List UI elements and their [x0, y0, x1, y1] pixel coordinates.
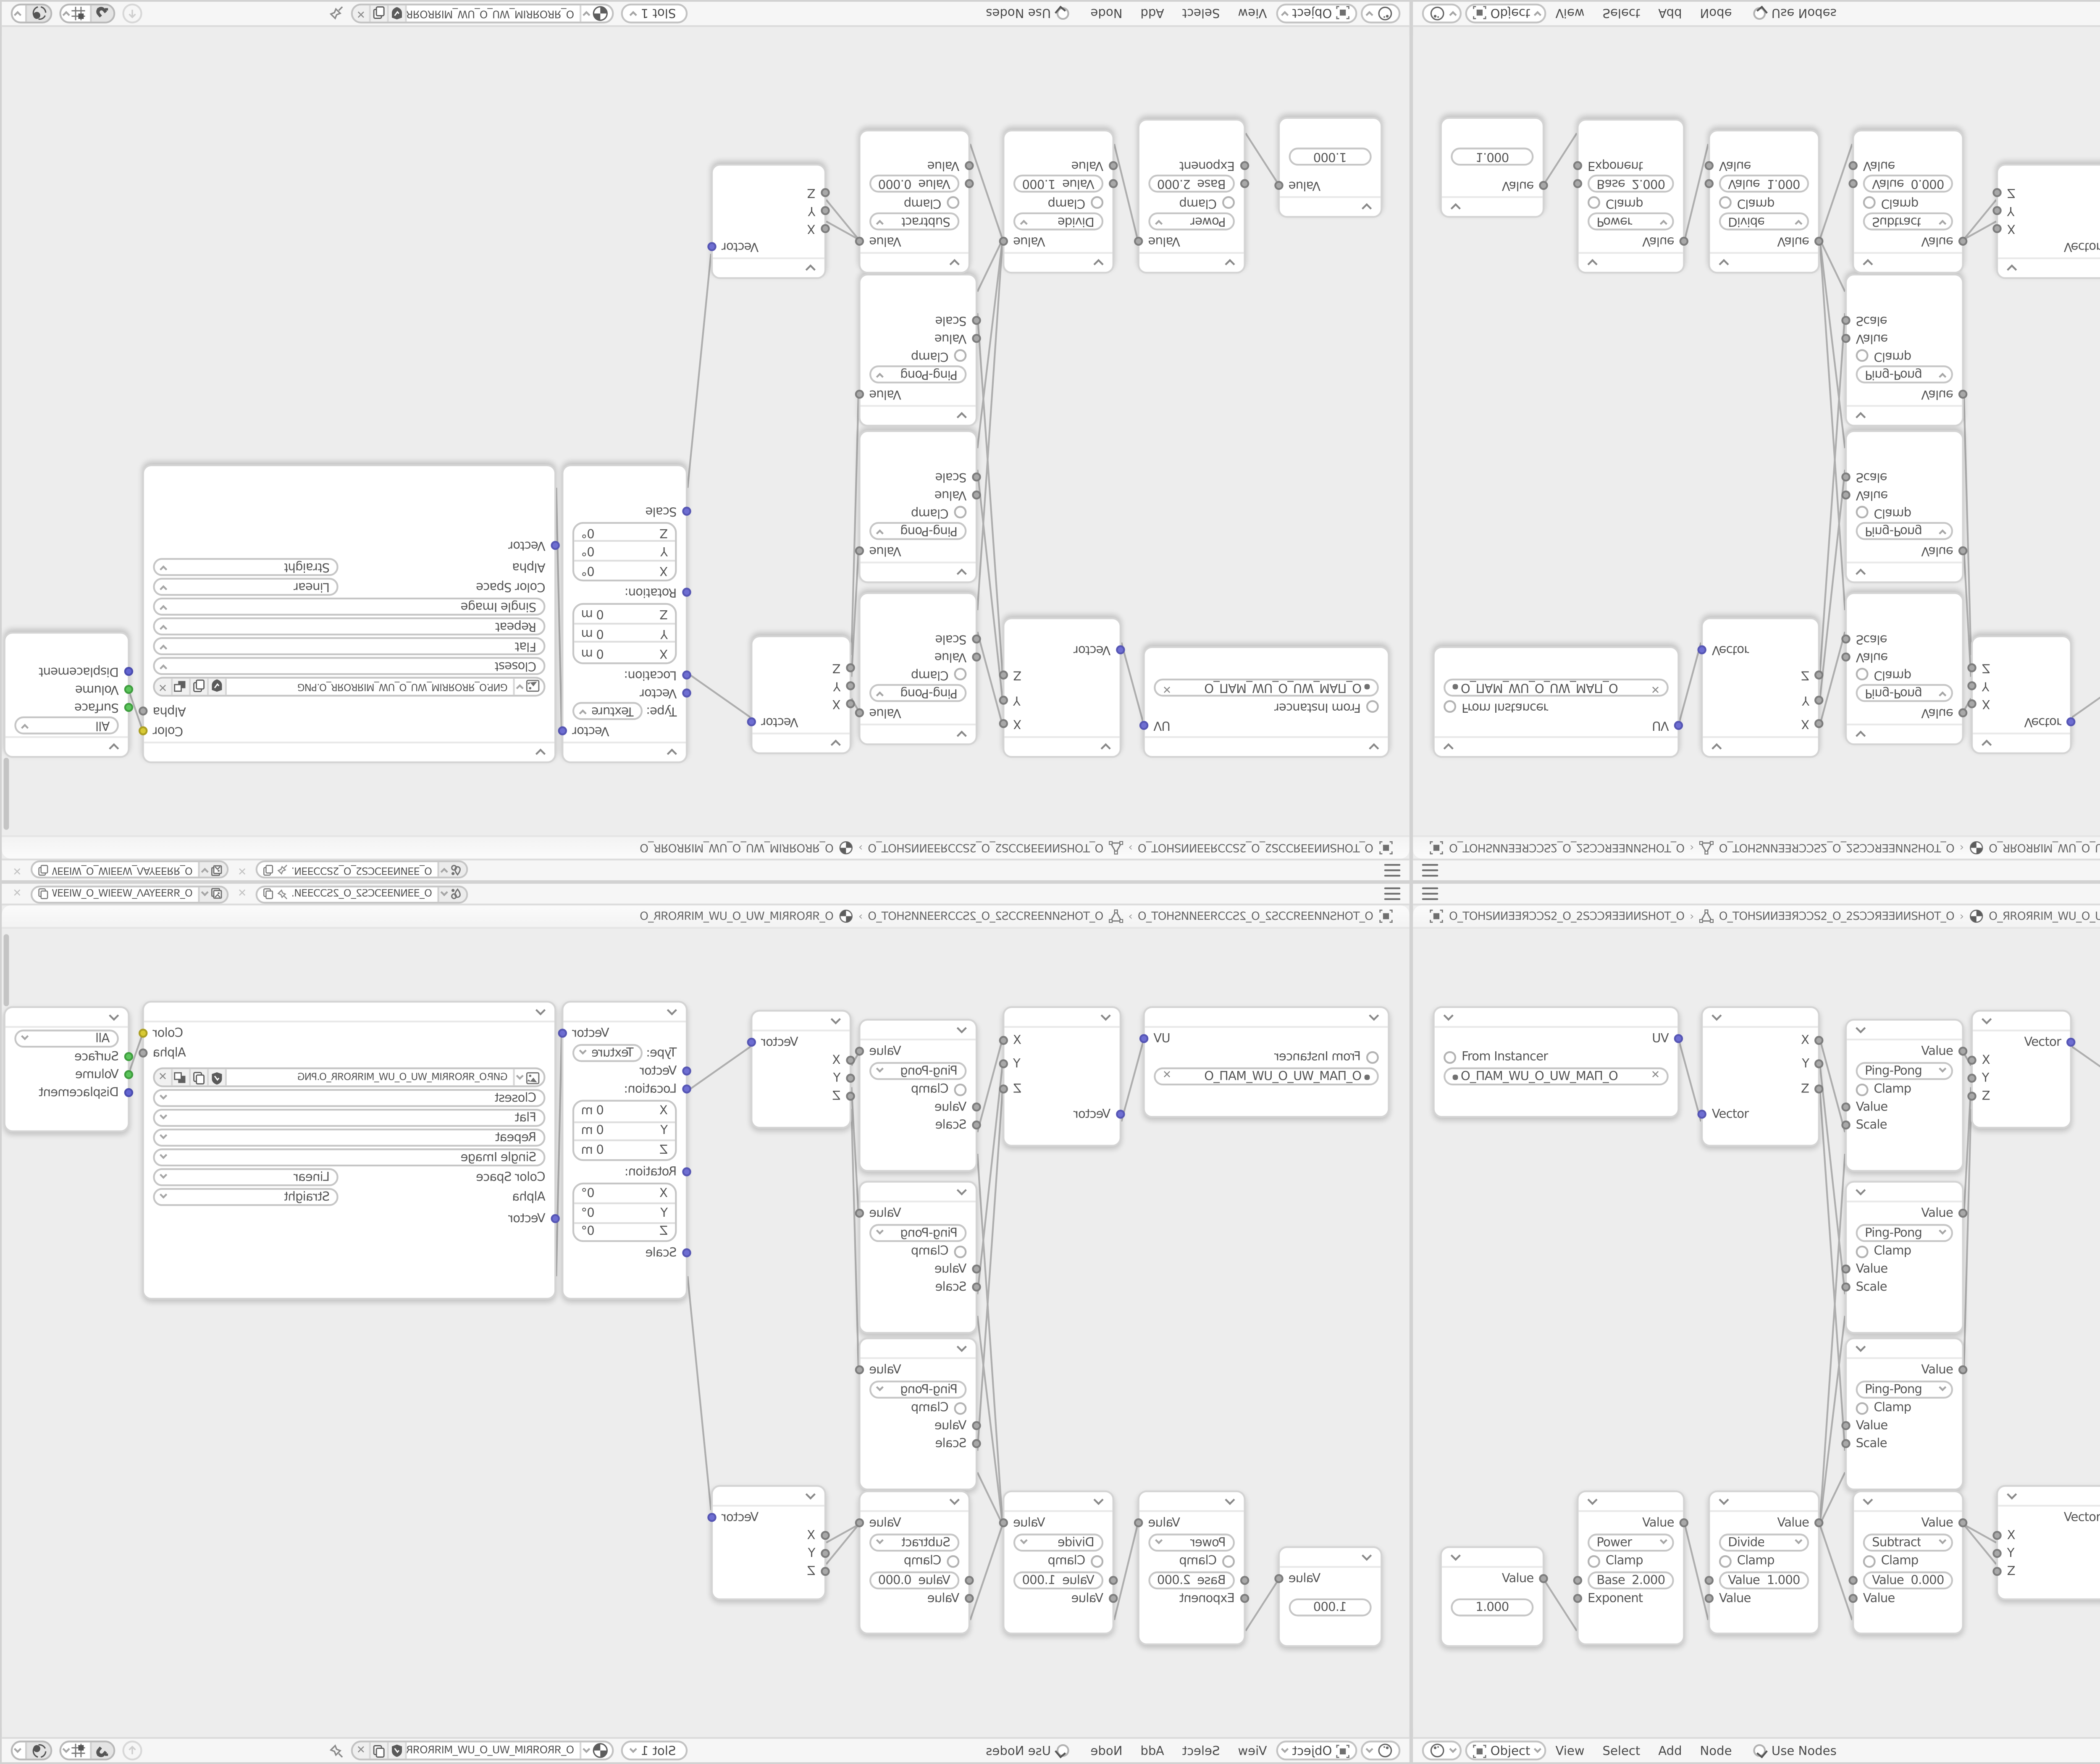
- editor-type-button[interactable]: [1422, 1740, 1462, 1760]
- projection-dropdown[interactable]: Flat: [153, 1108, 545, 1126]
- socket-value2-in[interactable]: [1848, 1594, 1857, 1603]
- copy-material-button[interactable]: [371, 5, 389, 22]
- base-field[interactable]: Base2.000: [1148, 176, 1235, 194]
- node-collapse-chevron[interactable]: [1847, 1339, 1962, 1359]
- unlink-x-icon[interactable]: ✕: [236, 864, 249, 877]
- projection-dropdown[interactable]: Flat: [153, 638, 545, 656]
- node-collapse-chevron[interactable]: [861, 405, 976, 425]
- socket-vector-in[interactable]: [1697, 1110, 1706, 1118]
- socket-value-out[interactable]: [855, 391, 864, 399]
- socket-y-in[interactable]: [1992, 1549, 2001, 1558]
- socket-value-in[interactable]: [1841, 1421, 1850, 1430]
- socket-y-in[interactable]: [821, 1549, 829, 1558]
- math-operation-dropdown[interactable]: Power: [1148, 1533, 1235, 1551]
- x-icon[interactable]: ✕: [1651, 1070, 1660, 1081]
- node-image-texture[interactable]: Color Alpha GИP.O_ЯROЯRIM_WU_O_UW_MIЯROЯ…: [142, 465, 556, 763]
- clamp-checkbox[interactable]: [954, 507, 966, 519]
- menu-view[interactable]: View: [1238, 1743, 1267, 1758]
- viewlayer-selector[interactable]: O_ЯЯƎƎYAΛ_WƎƎIW_O_WIƎƎW_ΛAYƎƎЯЯ_O: [31, 885, 228, 903]
- alpha-dropdown[interactable]: Straight: [153, 1187, 339, 1205]
- breadcrumb-object[interactable]: O_TOHSИИƎƎЯƆƆS2_O_2SƆƆЯƎƎИИSHOT_O: [1138, 842, 1373, 854]
- socket-value-in[interactable]: [972, 1265, 981, 1273]
- socket-y-in[interactable]: [1967, 1074, 1976, 1082]
- node-uv-map[interactable]: UV From Instancer O_ПAM_WU_O_UW_MAП_O✕: [1143, 646, 1389, 758]
- socket-scale-in[interactable]: [1841, 1439, 1850, 1448]
- socket-z-in[interactable]: [1967, 663, 1976, 672]
- node-collapse-chevron[interactable]: [1998, 1487, 2100, 1507]
- from-instancer-checkbox[interactable]: [1444, 1050, 1456, 1063]
- socket-scale-in[interactable]: [1841, 316, 1850, 325]
- node-collapse-chevron[interactable]: [5, 736, 128, 756]
- node-math-ping-pong[interactable]: Value Ping-Pong Clamp Value Scale: [858, 1337, 977, 1490]
- clamp-checkbox[interactable]: [1588, 1554, 1600, 1567]
- socket-vector-in[interactable]: [1116, 645, 1125, 654]
- clamp-checkbox[interactable]: [1863, 1554, 1876, 1567]
- socket-exponent-in[interactable]: [1240, 1594, 1249, 1603]
- mode-dropdown[interactable]: Object: [1465, 4, 1546, 24]
- socket-vector-in[interactable]: [1697, 645, 1706, 654]
- socket-x-out[interactable]: [1814, 1035, 1823, 1044]
- math-operation-dropdown[interactable]: Ping-Pong: [869, 1061, 966, 1079]
- socket-vector-out[interactable]: [747, 1037, 756, 1046]
- socket-z-in[interactable]: [1992, 1567, 2001, 1576]
- menu-hamburger-icon[interactable]: [1384, 887, 1401, 900]
- x-icon[interactable]: ✕: [1163, 1070, 1172, 1081]
- socket-alpha-out[interactable]: [139, 1047, 147, 1056]
- clamp-checkbox[interactable]: [1588, 197, 1600, 210]
- socket-value-out[interactable]: [1134, 238, 1143, 247]
- use-nodes-checkbox[interactable]: [1056, 7, 1069, 20]
- uv-map-dropdown[interactable]: O_ПAM_WU_O_UW_MAП_O✕: [1444, 1066, 1669, 1084]
- socket-vector-out[interactable]: [558, 1028, 567, 1037]
- breadcrumb-material[interactable]: O_ЯROЯRIM_WU_O_UW_MIЯROЯR_O: [1989, 910, 2100, 922]
- node-math-subtract[interactable]: Value Subtract Clamp Value0.000 Value: [1852, 130, 1964, 274]
- socket-value-out[interactable]: [855, 1208, 864, 1217]
- socket-value-in[interactable]: [972, 1421, 981, 1430]
- value-field[interactable]: 1.000: [1451, 149, 1533, 167]
- socket-scale-in[interactable]: [972, 1283, 981, 1291]
- node-collapse-chevron[interactable]: [713, 257, 824, 277]
- value-field[interactable]: 1.000: [1289, 1598, 1372, 1616]
- socket-z-out[interactable]: [999, 670, 1008, 679]
- socket-vector-out[interactable]: [558, 727, 567, 736]
- node-collapse-chevron[interactable]: [1703, 736, 1818, 756]
- node-collapse-chevron[interactable]: [1854, 1492, 1962, 1512]
- math-operation-dropdown[interactable]: Ping-Pong: [1856, 1223, 1953, 1241]
- math-operation-dropdown[interactable]: Power: [1148, 213, 1235, 231]
- node-combine-xyz[interactable]: Vector X Y Z: [751, 1010, 851, 1129]
- value-field[interactable]: Value1.000: [1013, 176, 1103, 194]
- socket-vector-out[interactable]: [2066, 718, 2075, 727]
- socket-x-in[interactable]: [846, 699, 855, 708]
- socket-x-in[interactable]: [821, 1531, 829, 1540]
- fake-user-shield-button[interactable]: [209, 1069, 227, 1086]
- menu-node[interactable]: Node: [1090, 1743, 1122, 1758]
- socket-alpha-out[interactable]: [139, 707, 147, 716]
- node-collapse-chevron[interactable]: [861, 562, 976, 581]
- node-collapse-chevron[interactable]: [861, 1492, 969, 1512]
- socket-vector-in[interactable]: [682, 1066, 691, 1075]
- node-math-power[interactable]: Value Power Clamp Base2.000 Exponent: [1138, 119, 1246, 274]
- value-field[interactable]: Value0.000: [869, 176, 959, 194]
- pin-icon[interactable]: [329, 6, 344, 21]
- socket-color-out[interactable]: [139, 1028, 147, 1037]
- socket-value-in[interactable]: [1841, 1102, 1850, 1111]
- socket-value-out[interactable]: [1680, 238, 1688, 247]
- socket-value-out[interactable]: [855, 547, 864, 556]
- node-material-output[interactable]: All Surface Volume Displacement: [4, 632, 130, 758]
- socket-rotation-in[interactable]: [682, 1166, 691, 1175]
- socket-y-out[interactable]: [1814, 696, 1823, 704]
- socket-z-in[interactable]: [846, 663, 855, 672]
- socket-vector-in[interactable]: [1116, 1110, 1125, 1118]
- breadcrumb-mesh[interactable]: O_TOHSИИƎƎЯƆƆS2_O_2SƆƆЯƎƎИИSHOT_O: [1719, 910, 1954, 922]
- socket-scale-in[interactable]: [1841, 1283, 1850, 1291]
- location-fields[interactable]: X0 m Y0 m Z0 m: [572, 604, 677, 664]
- node-math-ping-pong[interactable]: Value Ping-Pong Clamp Value Scale: [1845, 430, 1964, 583]
- node-collapse-chevron[interactable]: [1847, 1183, 1962, 1202]
- socket-exponent-in[interactable]: [1240, 161, 1249, 170]
- uv-map-dropdown[interactable]: O_ПAM_WU_O_UW_MAП_O✕: [1154, 680, 1379, 698]
- node-collapse-chevron[interactable]: [1145, 1008, 1388, 1028]
- clamp-checkbox[interactable]: [1856, 1245, 1869, 1257]
- socket-z-out[interactable]: [1814, 1084, 1823, 1093]
- from-instancer-checkbox[interactable]: [1444, 701, 1456, 714]
- node-collapse-chevron[interactable]: [1847, 1021, 1962, 1040]
- math-operation-dropdown[interactable]: Ping-Pong: [1856, 366, 1953, 384]
- math-operation-dropdown[interactable]: Power: [1588, 1533, 1674, 1551]
- new-image-copy-button[interactable]: [191, 1069, 209, 1086]
- socket-value-out[interactable]: [1958, 1046, 1967, 1055]
- breadcrumb-material[interactable]: O_ЯROЯRIM_WU_O_UW_MIЯROЯR_O: [1989, 842, 2100, 854]
- socket-x-in[interactable]: [846, 1056, 855, 1065]
- mode-dropdown[interactable]: Object: [1276, 4, 1357, 24]
- proportional-edit-button[interactable]: [25, 5, 50, 22]
- colorspace-dropdown[interactable]: Linear: [153, 579, 339, 597]
- node-collapse-chevron[interactable]: [1973, 1012, 2070, 1032]
- math-operation-dropdown[interactable]: Divide: [1719, 1533, 1809, 1551]
- socket-z-out[interactable]: [999, 1084, 1008, 1093]
- math-operation-dropdown[interactable]: Ping-Pong: [1856, 685, 1953, 703]
- breadcrumb-mesh[interactable]: O_TOHSИИƎƎЯƆƆS2_O_2SƆƆЯƎƎИИSHOT_O: [868, 910, 1103, 922]
- node-math-subtract[interactable]: Value Subtract Clamp Value0.000 Value: [858, 1491, 970, 1635]
- node-collapse-chevron[interactable]: [5, 1008, 128, 1028]
- socket-value-out[interactable]: [1958, 709, 1967, 718]
- value-field[interactable]: Value0.000: [869, 1570, 959, 1588]
- math-operation-dropdown[interactable]: Ping-Pong: [1856, 1380, 1953, 1398]
- falloff-dropdown[interactable]: [13, 1743, 25, 1759]
- node-material-output[interactable]: All Surface Volume Displacement: [4, 1006, 130, 1132]
- breadcrumb-mesh[interactable]: O_TOHSИИƎƎЯƆƆS2_O_2SƆƆЯƎƎИИSHOT_O: [868, 842, 1103, 854]
- node-math-ping-pong[interactable]: Value Ping-Pong Clamp Value Scale: [1845, 1337, 1964, 1490]
- node-math-subtract[interactable]: Value Subtract Clamp Value0.000 Value: [858, 130, 970, 274]
- node-uv-map[interactable]: UV From Instancer O_ПAM_WU_O_UW_MAП_O✕: [1433, 646, 1679, 758]
- menu-select[interactable]: Select: [1182, 6, 1220, 21]
- socket-value-out[interactable]: [1958, 547, 1967, 556]
- node-collapse-chevron[interactable]: [1280, 196, 1381, 216]
- node-collapse-chevron[interactable]: [1145, 736, 1388, 756]
- socket-surface-in[interactable]: [124, 1052, 133, 1061]
- socket-value-out[interactable]: [1539, 182, 1548, 191]
- clamp-checkbox[interactable]: [947, 1554, 959, 1567]
- node-collapse-chevron[interactable]: [563, 742, 685, 761]
- menu-select[interactable]: Select: [1182, 1743, 1220, 1758]
- node-collapse-chevron[interactable]: [752, 1012, 849, 1032]
- snap-toggle-button[interactable]: [90, 5, 113, 22]
- socket-value-out[interactable]: [1274, 1573, 1283, 1582]
- editor-type-button[interactable]: [1422, 4, 1462, 24]
- node-collapse-chevron[interactable]: [1847, 724, 1962, 743]
- clamp-checkbox[interactable]: [947, 197, 959, 210]
- socket-base-in[interactable]: [1240, 1575, 1249, 1584]
- math-operation-dropdown[interactable]: Divide: [1719, 213, 1809, 231]
- editor-type-button[interactable]: [1361, 1740, 1400, 1760]
- copy-icon[interactable]: [263, 864, 274, 877]
- node-collapse-chevron[interactable]: [1139, 252, 1244, 272]
- socket-value1-in[interactable]: [965, 180, 974, 189]
- socket-vector-out[interactable]: [747, 718, 756, 727]
- extension-dropdown[interactable]: Repeat: [153, 1128, 545, 1146]
- math-operation-dropdown[interactable]: Ping-Pong: [869, 523, 966, 541]
- copy-icon[interactable]: [38, 887, 49, 900]
- socket-value2-in[interactable]: [1109, 1594, 1118, 1603]
- copy-icon[interactable]: [263, 887, 274, 900]
- math-operation-dropdown[interactable]: Ping-Pong: [869, 685, 966, 703]
- use-nodes-checkbox[interactable]: [1753, 1744, 1766, 1757]
- node-math-ping-pong[interactable]: Value Ping-Pong Clamp Value Scale: [858, 592, 977, 745]
- menu-select[interactable]: Select: [1602, 6, 1640, 21]
- socket-value-in[interactable]: [972, 653, 981, 661]
- clamp-checkbox[interactable]: [1856, 1401, 1869, 1414]
- clamp-checkbox[interactable]: [954, 1245, 966, 1257]
- node-combine-xyz[interactable]: Vector X Y Z: [1971, 635, 2072, 754]
- node-math-power[interactable]: Value Power Clamp Base2.000 Exponent: [1577, 119, 1685, 274]
- socket-value-in[interactable]: [1841, 653, 1850, 661]
- socket-base-in[interactable]: [1240, 180, 1249, 189]
- socket-rotation-in[interactable]: [682, 588, 691, 597]
- socket-uv-out[interactable]: [1674, 1033, 1683, 1042]
- socket-scale-in[interactable]: [1841, 1121, 1850, 1129]
- unlink-material-button[interactable]: ✕: [353, 5, 371, 22]
- parent-up-icon[interactable]: [122, 1740, 142, 1760]
- socket-location-in[interactable]: [682, 670, 691, 679]
- breadcrumb-object[interactable]: O_TOHSИИƎƎЯƆƆS2_O_2SƆƆЯƎƎИИSHOT_O: [1449, 910, 1684, 922]
- socket-z-in[interactable]: [1967, 1092, 1976, 1100]
- clamp-checkbox[interactable]: [1863, 197, 1876, 210]
- value-field[interactable]: 1.000: [1289, 149, 1372, 167]
- math-operation-dropdown[interactable]: Ping-Pong: [1856, 523, 1953, 541]
- mode-dropdown[interactable]: Object: [1276, 1740, 1357, 1760]
- unlink-x-icon[interactable]: ✕: [11, 864, 24, 877]
- mapping-type-dropdown[interactable]: Texture: [572, 703, 643, 721]
- node-collapse-chevron[interactable]: [1703, 1008, 1818, 1028]
- socket-z-in[interactable]: [821, 188, 829, 197]
- math-operation-dropdown[interactable]: Subtract: [869, 213, 959, 231]
- socket-displacement-in[interactable]: [124, 667, 133, 676]
- scene-selector[interactable]: O_ƎƎNИƎƎƆCS2_O_2SƆƆƎƎИ...: [256, 861, 468, 879]
- math-operation-dropdown[interactable]: Divide: [1013, 1533, 1103, 1551]
- socket-z-in[interactable]: [1992, 188, 2001, 197]
- output-target-dropdown[interactable]: All: [14, 1029, 119, 1047]
- socket-x-in[interactable]: [821, 224, 829, 233]
- node-collapse-chevron[interactable]: [1710, 1492, 1818, 1512]
- snapping-controls[interactable]: [59, 1740, 115, 1760]
- node-math-power[interactable]: Value Power Clamp Base2.000 Exponent: [1577, 1491, 1685, 1646]
- socket-y-out[interactable]: [999, 696, 1008, 704]
- socket-scale-in[interactable]: [1841, 635, 1850, 643]
- mapping-type-dropdown[interactable]: Texture: [572, 1043, 643, 1061]
- breadcrumb-object[interactable]: O_TOHSИИƎƎЯƆƆS2_O_2SƆƆЯƎƎИИSHOT_O: [1449, 842, 1684, 854]
- node-collapse-chevron[interactable]: [861, 252, 969, 272]
- socket-scale-in[interactable]: [972, 635, 981, 643]
- node-collapse-chevron[interactable]: [1442, 1548, 1543, 1568]
- falloff-controls[interactable]: [11, 4, 52, 24]
- x-icon[interactable]: ✕: [1651, 683, 1660, 694]
- shader-node-canvas[interactable]: O_TOHSИИƎƎЯƆƆS2_O_2SƆƆЯƎƎИИSHOT_O › O_TO…: [1413, 906, 2100, 1737]
- shader-node-canvas[interactable]: O_TOHSИИƎƎЯƆƆS2_O_2SƆƆЯƎƎИИSHOT_O › O_TO…: [2, 906, 1409, 1737]
- socket-uv-out[interactable]: [1139, 1033, 1148, 1042]
- node-image-texture[interactable]: Color Alpha GИP.O_ЯROЯRIM_WU_O_UW_MIЯROЯ…: [142, 1001, 556, 1299]
- copy-material-button[interactable]: [371, 1743, 389, 1759]
- socket-value1-in[interactable]: [1848, 1575, 1857, 1584]
- node-separate-xyz[interactable]: X Y Z Vector: [1003, 617, 1121, 758]
- socket-value-out[interactable]: [1539, 1573, 1548, 1582]
- node-math-power[interactable]: Value Power Clamp Base2.000 Exponent: [1138, 1491, 1246, 1646]
- menu-hamburger-icon[interactable]: [1422, 864, 1438, 877]
- socket-value1-in[interactable]: [1109, 1575, 1118, 1584]
- socket-x-in[interactable]: [1967, 1056, 1976, 1065]
- socket-value2-in[interactable]: [1848, 161, 1857, 170]
- node-math-ping-pong[interactable]: Value Ping-Pong Clamp Value Scale: [858, 1019, 977, 1172]
- socket-base-in[interactable]: [1573, 180, 1582, 189]
- rotation-fields[interactable]: X0° Y0° Z0°: [572, 522, 677, 583]
- socket-y-in[interactable]: [1967, 681, 1976, 690]
- node-collapse-chevron[interactable]: [1579, 252, 1683, 272]
- node-collapse-chevron[interactable]: [1579, 1492, 1683, 1512]
- clamp-checkbox[interactable]: [1856, 1083, 1869, 1095]
- node-math-ping-pong[interactable]: Value Ping-Pong Clamp Value Scale: [858, 430, 977, 583]
- value-field[interactable]: Value0.000: [1863, 1570, 1953, 1588]
- clamp-checkbox[interactable]: [1856, 669, 1869, 681]
- node-uv-map[interactable]: UV From Instancer O_ПAM_WU_O_UW_MAП_O✕: [1433, 1006, 1679, 1118]
- node-math-divide[interactable]: Value Divide Clamp Value1.000 Value: [1708, 1491, 1820, 1635]
- pin-icon[interactable]: [277, 865, 288, 876]
- socket-value-out[interactable]: [1958, 1517, 1967, 1526]
- clamp-checkbox[interactable]: [1856, 350, 1869, 363]
- interpolation-dropdown[interactable]: Closest: [153, 1088, 545, 1106]
- node-collapse-chevron[interactable]: [1442, 196, 1543, 216]
- socket-y-in[interactable]: [846, 1074, 855, 1082]
- node-separate-xyz[interactable]: X Y Z Vector: [1701, 1006, 1820, 1147]
- node-uv-map[interactable]: UV From Instancer O_ПAM_WU_O_UW_MAП_O✕: [1143, 1006, 1389, 1118]
- socket-vector-in[interactable]: [551, 541, 559, 550]
- node-mapping[interactable]: Vector Type:Texture Vector Location: X0 …: [562, 465, 688, 763]
- socket-x-out[interactable]: [999, 1035, 1008, 1044]
- unlink-image-button[interactable]: ✕: [155, 1069, 173, 1086]
- clamp-checkbox[interactable]: [954, 350, 966, 363]
- math-operation-dropdown[interactable]: Power: [1588, 213, 1674, 231]
- mode-dropdown[interactable]: Object: [1465, 1740, 1546, 1760]
- socket-surface-in[interactable]: [124, 703, 133, 712]
- uv-map-dropdown[interactable]: O_ПAM_WU_O_UW_MAП_O✕: [1444, 680, 1669, 698]
- math-operation-dropdown[interactable]: Subtract: [1863, 1533, 1953, 1551]
- value-field[interactable]: Value1.000: [1719, 176, 1809, 194]
- clamp-checkbox[interactable]: [954, 669, 966, 681]
- source-dropdown[interactable]: Single Image: [153, 598, 545, 617]
- output-target-dropdown[interactable]: All: [14, 717, 119, 735]
- socket-value-out[interactable]: [1958, 1365, 1967, 1373]
- snap-mode-dropdown[interactable]: [61, 1743, 90, 1759]
- rotation-fields[interactable]: X0° Y0° Z0°: [572, 1182, 677, 1242]
- node-collapse-chevron[interactable]: [861, 1021, 976, 1040]
- viewlayer-name[interactable]: O_ЯЯƎƎYAΛ_WƎƎIW_O_WIƎƎW_ΛAYƎƎЯЯ_O: [52, 888, 192, 899]
- node-collapse-chevron[interactable]: [1710, 252, 1818, 272]
- node-mapping[interactable]: Vector Type:Texture Vector Location: X0 …: [562, 1001, 688, 1299]
- node-combine-xyz[interactable]: Vector X Y Z: [751, 635, 851, 754]
- node-separate-xyz[interactable]: X Y Z Vector: [1701, 617, 1820, 758]
- socket-value1-in[interactable]: [1705, 1575, 1714, 1584]
- node-collapse-chevron[interactable]: [1854, 252, 1962, 272]
- socket-scale-in[interactable]: [972, 472, 981, 481]
- colorspace-dropdown[interactable]: Linear: [153, 1167, 339, 1185]
- base-field[interactable]: Base2.000: [1588, 1570, 1674, 1588]
- socket-value2-in[interactable]: [1109, 161, 1118, 170]
- socket-value-out[interactable]: [855, 1046, 864, 1055]
- viewlayer-selector[interactable]: O_ЯЯƎƎYAΛ_WƎƎIW_O_WIƎƎW_ΛAYƎƎЯЯ_O: [31, 861, 228, 879]
- base-field[interactable]: Base2.000: [1588, 176, 1674, 194]
- node-collapse-chevron[interactable]: [1004, 252, 1112, 272]
- socket-value-out[interactable]: [1814, 1517, 1823, 1526]
- breadcrumb-object[interactable]: O_TOHSИИƎƎЯƆƆS2_O_2SƆƆЯƎƎИИSHOT_O: [1138, 910, 1373, 922]
- clamp-checkbox[interactable]: [954, 1083, 966, 1095]
- new-image-copy-button[interactable]: [191, 679, 209, 695]
- node-math-divide[interactable]: Value Divide Clamp Value1.000 Value: [1003, 1491, 1114, 1635]
- clamp-checkbox[interactable]: [1091, 197, 1103, 210]
- fake-user-shield-button[interactable]: [209, 679, 227, 695]
- socket-z-in[interactable]: [821, 1567, 829, 1576]
- node-combine-xyz[interactable]: Vector X Y Z: [1996, 164, 2100, 279]
- snap-toggle-button[interactable]: [90, 1743, 113, 1759]
- node-math-divide[interactable]: Value Divide Clamp Value1.000 Value: [1708, 130, 1820, 274]
- socket-value1-in[interactable]: [1705, 180, 1714, 189]
- socket-scale-in[interactable]: [682, 1248, 691, 1257]
- clamp-checkbox[interactable]: [1091, 1554, 1103, 1567]
- image-selector[interactable]: GИP.O_ЯROЯRIM_WU_O_UW_MIЯROЯR_O.PNG ✕: [153, 1067, 545, 1087]
- extension-dropdown[interactable]: Repeat: [153, 618, 545, 636]
- socket-value2-in[interactable]: [1705, 161, 1714, 170]
- menu-add[interactable]: Add: [1658, 1743, 1682, 1758]
- breadcrumb-mesh[interactable]: O_TOHSИИƎƎЯƆƆS2_O_2SƆƆЯƎƎИИSHOT_O: [1719, 842, 1954, 854]
- menu-view[interactable]: View: [1238, 6, 1267, 21]
- node-collapse-chevron[interactable]: [144, 742, 554, 761]
- node-collapse-chevron[interactable]: [861, 724, 976, 743]
- use-nodes-checkbox[interactable]: [1056, 1744, 1069, 1757]
- from-instancer-checkbox[interactable]: [1366, 701, 1379, 714]
- value-field[interactable]: Value0.000: [1863, 176, 1953, 194]
- value-field[interactable]: Value1.000: [1719, 1570, 1809, 1588]
- math-operation-dropdown[interactable]: Divide: [1013, 213, 1103, 231]
- menu-add[interactable]: Add: [1140, 1743, 1164, 1758]
- socket-z-in[interactable]: [846, 1092, 855, 1100]
- socket-value-out[interactable]: [999, 238, 1008, 247]
- fake-user-shield-button[interactable]: [389, 5, 407, 22]
- node-collapse-chevron[interactable]: [1139, 1492, 1244, 1512]
- node-math-ping-pong[interactable]: Value Ping-Pong Clamp Value Scale: [1845, 1181, 1964, 1333]
- math-operation-dropdown[interactable]: Ping-Pong: [869, 1223, 966, 1241]
- vertical-scrollbar[interactable]: [4, 934, 9, 1006]
- socket-value2-in[interactable]: [965, 161, 974, 170]
- menu-node[interactable]: Node: [1090, 6, 1122, 21]
